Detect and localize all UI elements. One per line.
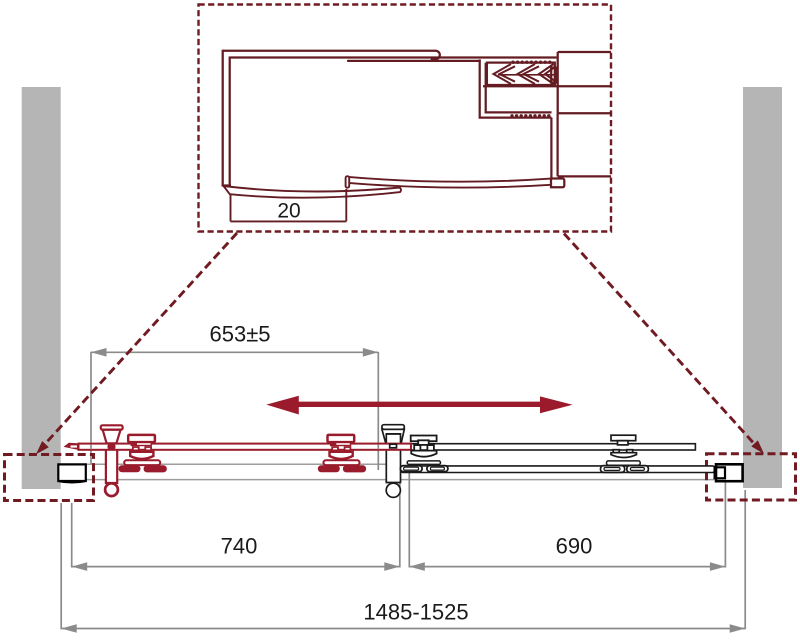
svg-text:740: 740 [221, 534, 258, 559]
svg-text:20: 20 [277, 200, 300, 223]
svg-text:1485-1525: 1485-1525 [363, 600, 468, 625]
svg-text:690: 690 [556, 534, 593, 559]
svg-text:653±5: 653±5 [209, 322, 270, 347]
